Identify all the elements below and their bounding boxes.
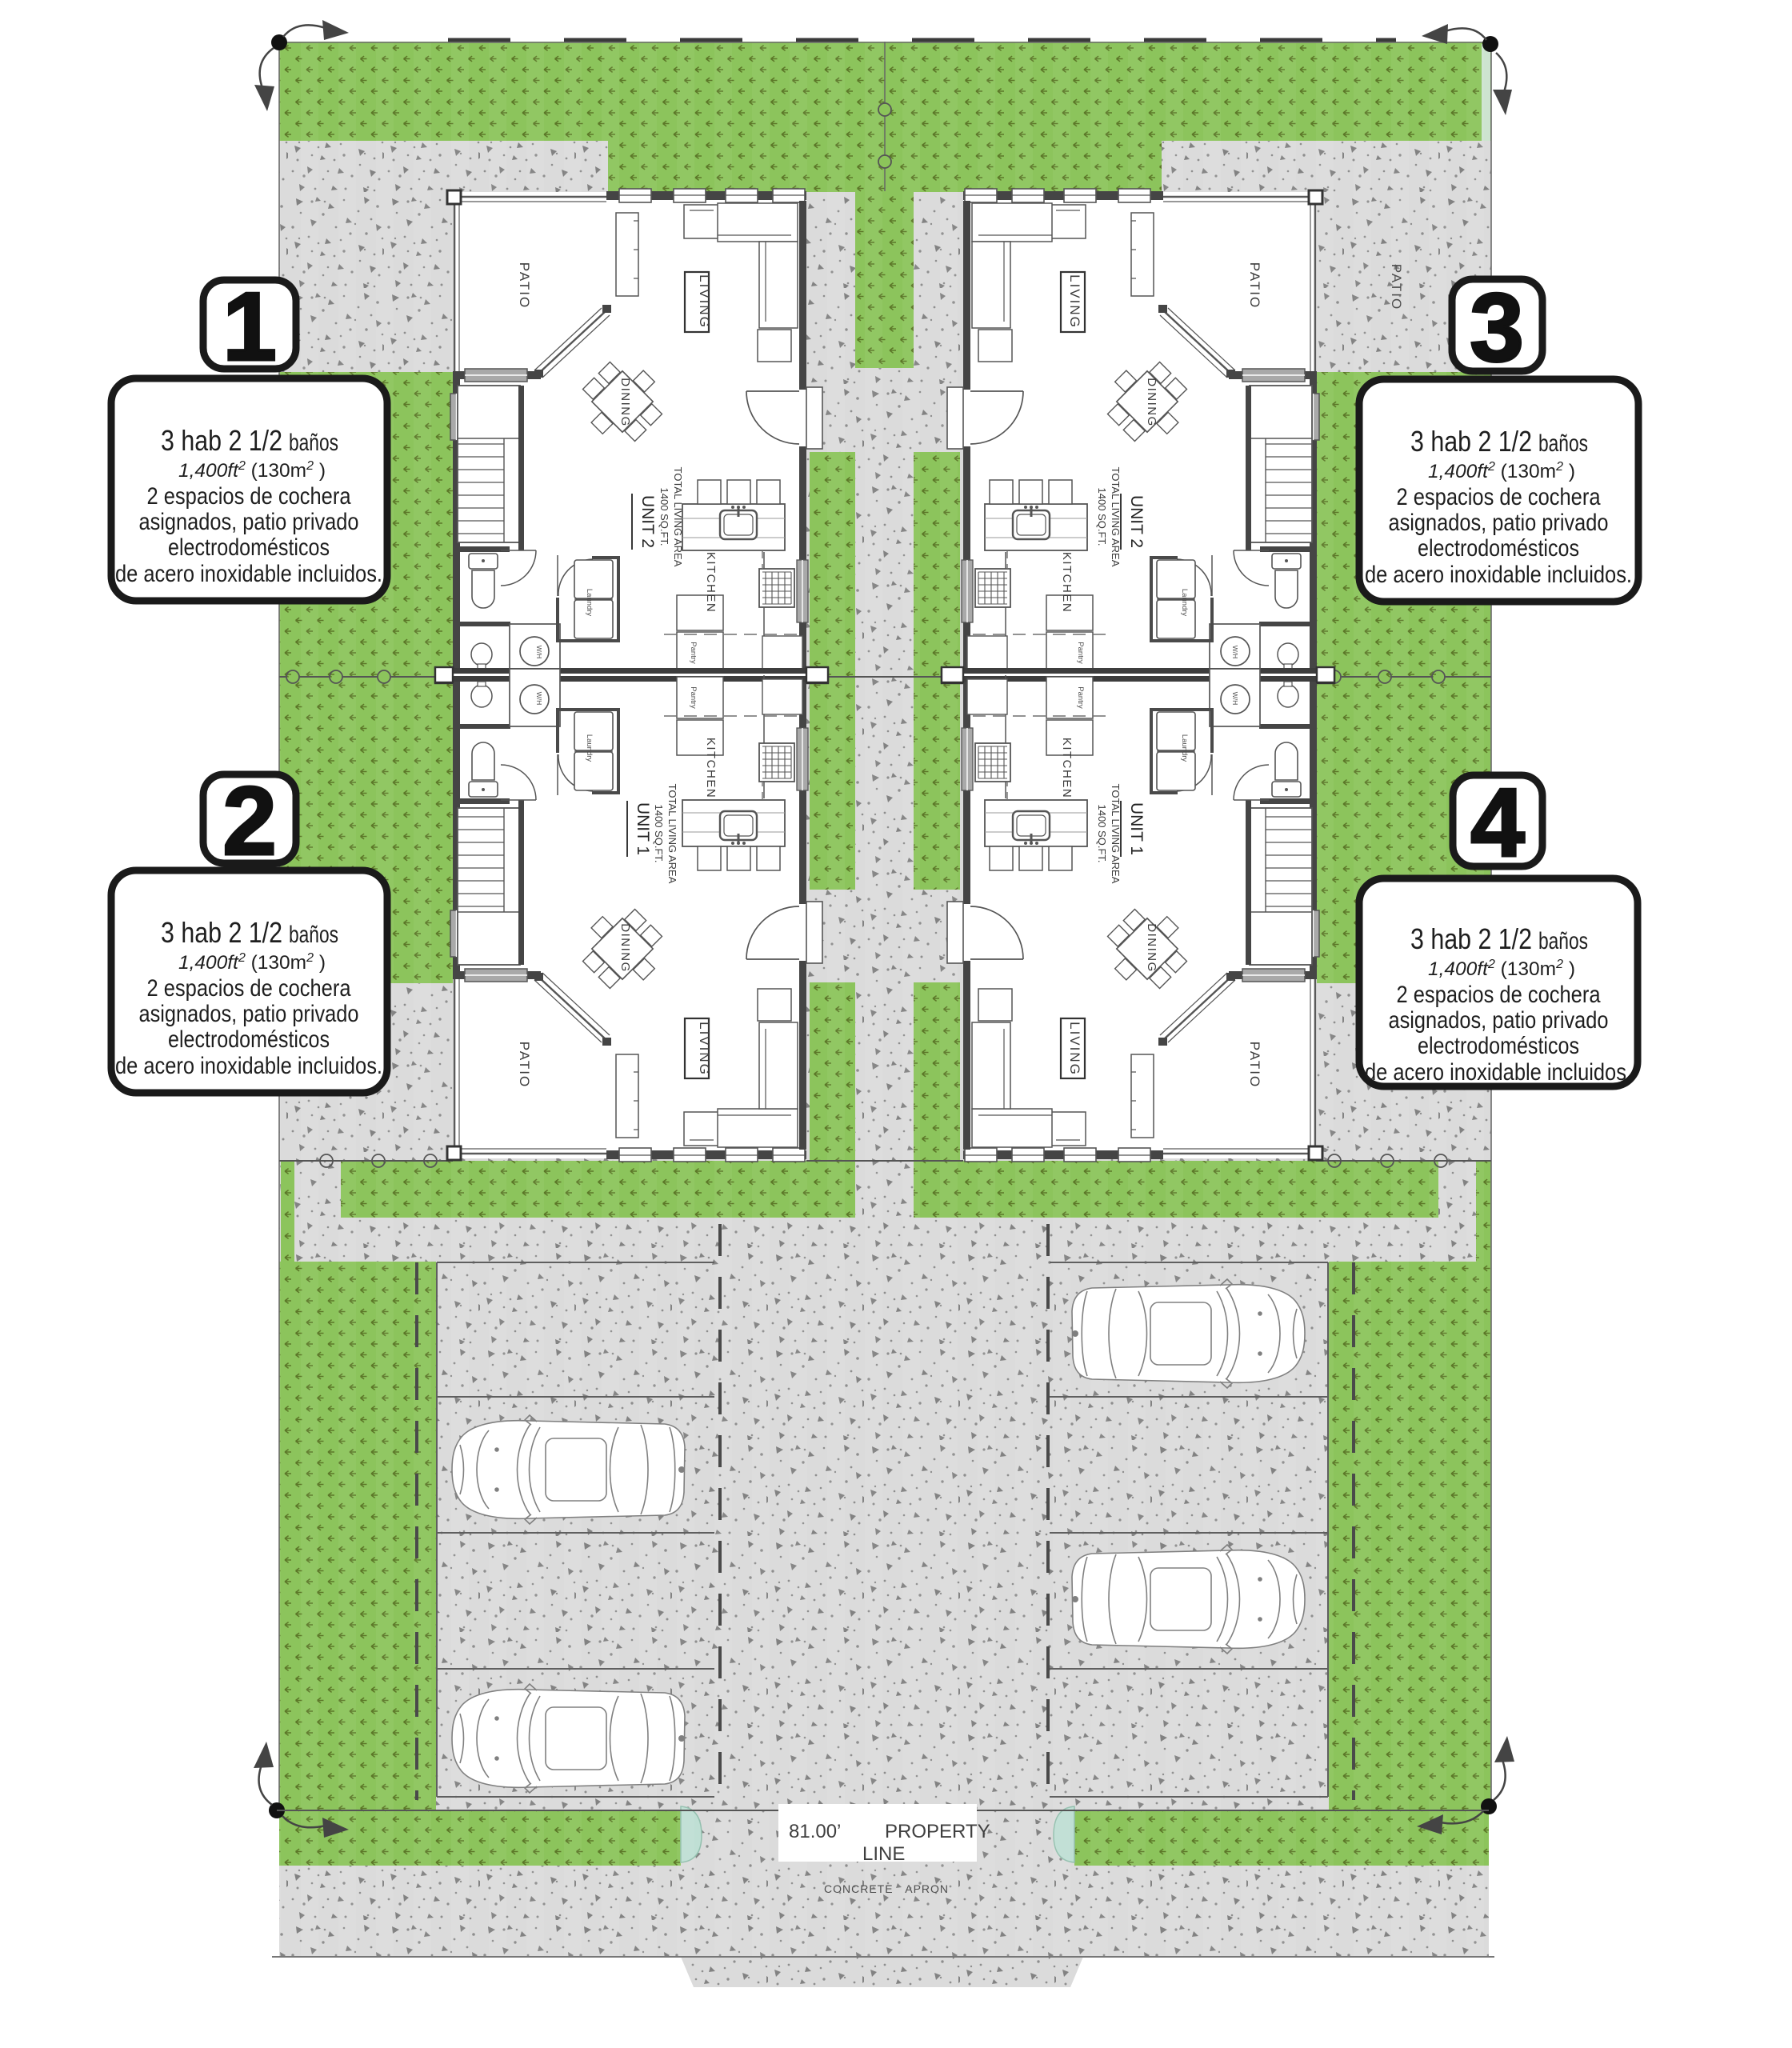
- svg-text:PATIO: PATIO: [517, 262, 532, 310]
- svg-text:de acero inoxidable incluidos.: de acero inoxidable incluidos.: [1365, 1059, 1632, 1086]
- svg-text:electrodomésticos: electrodomésticos: [1418, 1033, 1579, 1059]
- svg-text:KITCHEN: KITCHEN: [1060, 738, 1074, 798]
- svg-text:Laundry: Laundry: [585, 589, 594, 617]
- svg-text:LIVING: LIVING: [1067, 1022, 1082, 1076]
- svg-text:LIVING: LIVING: [1067, 274, 1082, 329]
- svg-text:1: 1: [222, 272, 277, 381]
- svg-text:baños: baños: [1538, 430, 1588, 457]
- svg-text:1400 SQ.FT.: 1400 SQ.FT.: [1096, 805, 1108, 863]
- svg-text:TOTAL LIVING AREA: TOTAL LIVING AREA: [1110, 467, 1122, 567]
- svg-text:2 espacios de cochera: 2 espacios de cochera: [1397, 484, 1601, 510]
- svg-text:asignados, patio privado: asignados, patio privado: [1389, 510, 1609, 536]
- svg-text:Pantry: Pantry: [689, 642, 698, 664]
- svg-text:UNIT 1: UNIT 1: [634, 802, 652, 855]
- svg-text:baños: baños: [1538, 928, 1588, 954]
- svg-text:PATIO: PATIO: [1247, 262, 1262, 310]
- svg-text:Pantry: Pantry: [1076, 686, 1085, 709]
- svg-text:de acero inoxidable incluidos.: de acero inoxidable incluidos.: [115, 1053, 382, 1079]
- svg-text:W/H: W/H: [1231, 646, 1239, 659]
- svg-text:TOTAL LIVING AREA: TOTAL LIVING AREA: [1110, 784, 1122, 884]
- svg-text:DINING: DINING: [618, 378, 632, 427]
- svg-text:2 espacios de cochera: 2 espacios de cochera: [147, 975, 351, 1002]
- svg-text:W/H: W/H: [1231, 692, 1239, 706]
- svg-text:LIVING: LIVING: [697, 274, 712, 329]
- svg-text:1,400ft2 (130m2 ): 1,400ft2 (130m2 ): [178, 951, 326, 974]
- svg-text:2 espacios de cochera: 2 espacios de cochera: [147, 483, 351, 510]
- svg-text:LINE: LINE: [862, 1843, 905, 1865]
- svg-text:3 hab 2 1/2: 3 hab 2 1/2: [1410, 425, 1532, 458]
- svg-text:2 espacios de cochera: 2 espacios de cochera: [1397, 982, 1601, 1008]
- svg-text:DINING: DINING: [1145, 923, 1158, 973]
- svg-text:3 hab 2 1/2: 3 hab 2 1/2: [161, 424, 282, 457]
- svg-text:PATIO: PATIO: [1247, 1042, 1262, 1089]
- svg-text:DINING: DINING: [618, 923, 632, 973]
- svg-text:DINING: DINING: [1145, 378, 1158, 427]
- svg-text:de acero inoxidable incluidos.: de acero inoxidable incluidos.: [115, 561, 382, 587]
- svg-text:1400 SQ.FT.: 1400 SQ.FT.: [653, 805, 665, 863]
- svg-text:Laundry: Laundry: [1180, 589, 1189, 617]
- svg-text:LIVING: LIVING: [697, 1022, 712, 1076]
- svg-text:Laundry: Laundry: [585, 734, 594, 762]
- svg-text:Pantry: Pantry: [689, 686, 698, 709]
- svg-text:CONCRETE APRON: CONCRETE APRON: [824, 1882, 949, 1895]
- svg-text:KITCHEN: KITCHEN: [1060, 552, 1074, 613]
- svg-text:UNIT 2: UNIT 2: [1127, 495, 1146, 548]
- svg-text:baños: baños: [289, 922, 338, 948]
- svg-text:de acero inoxidable incluidos.: de acero inoxidable incluidos.: [1365, 562, 1632, 588]
- svg-text:UNIT 1: UNIT 1: [1127, 802, 1146, 855]
- svg-text:PATIO: PATIO: [517, 1042, 532, 1089]
- svg-text:1,400ft2 (130m2 ): 1,400ft2 (130m2 ): [1428, 958, 1575, 980]
- svg-text:3 hab 2 1/2: 3 hab 2 1/2: [1410, 922, 1532, 955]
- svg-text:3: 3: [1470, 273, 1524, 382]
- svg-text:asignados, patio privado: asignados, patio privado: [139, 509, 359, 535]
- svg-text:1400 SQ.FT.: 1400 SQ.FT.: [1096, 488, 1108, 546]
- svg-text:KITCHEN: KITCHEN: [704, 552, 718, 613]
- svg-text:Laundry: Laundry: [1180, 734, 1189, 762]
- svg-text:1,400ft2 (130m2 ): 1,400ft2 (130m2 ): [178, 459, 326, 482]
- svg-text:Pantry: Pantry: [1076, 642, 1085, 664]
- svg-text:TOTAL LIVING AREA: TOTAL LIVING AREA: [672, 467, 684, 567]
- svg-text:PROPERTY: PROPERTY: [885, 1821, 990, 1842]
- svg-text:PATIO: PATIO: [1389, 264, 1404, 311]
- svg-text:81.00’: 81.00’: [789, 1821, 841, 1842]
- svg-text:electrodomésticos: electrodomésticos: [168, 1026, 330, 1053]
- svg-text:KITCHEN: KITCHEN: [704, 738, 718, 798]
- svg-text:electrodomésticos: electrodomésticos: [168, 534, 330, 561]
- svg-text:baños: baños: [289, 430, 338, 456]
- svg-text:asignados, patio privado: asignados, patio privado: [139, 1001, 359, 1027]
- svg-text:W/H: W/H: [535, 646, 543, 659]
- svg-text:2: 2: [222, 766, 277, 875]
- svg-text:4: 4: [1470, 768, 1525, 877]
- svg-text:1,400ft2 (130m2 ): 1,400ft2 (130m2 ): [1428, 460, 1575, 482]
- svg-text:1400 SQ.FT.: 1400 SQ.FT.: [658, 488, 670, 546]
- svg-text:asignados, patio privado: asignados, patio privado: [1389, 1007, 1609, 1034]
- svg-text:W/H: W/H: [535, 692, 543, 706]
- svg-text:UNIT 2: UNIT 2: [638, 495, 657, 548]
- svg-text:electrodomésticos: electrodomésticos: [1418, 535, 1579, 562]
- svg-text:3 hab 2 1/2: 3 hab 2 1/2: [161, 916, 282, 949]
- svg-text:TOTAL LIVING AREA: TOTAL LIVING AREA: [666, 784, 678, 884]
